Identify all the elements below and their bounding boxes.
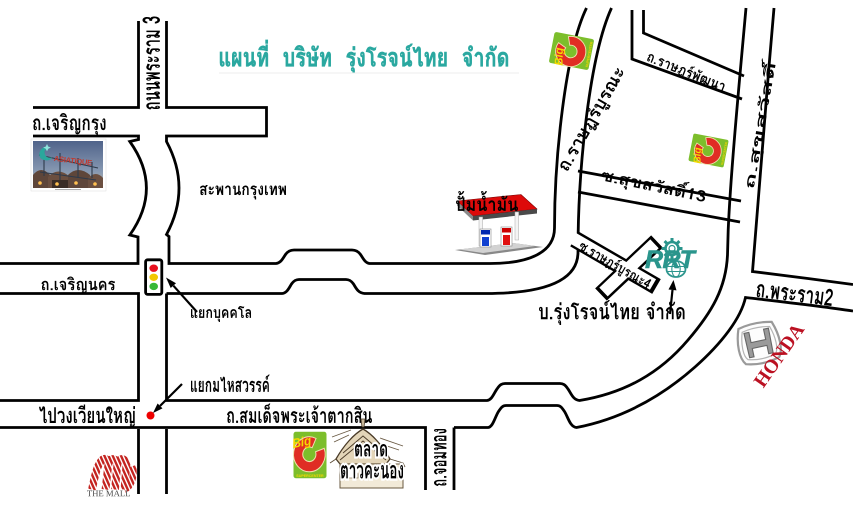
svg-text:RRT: RRT [645,246,698,274]
